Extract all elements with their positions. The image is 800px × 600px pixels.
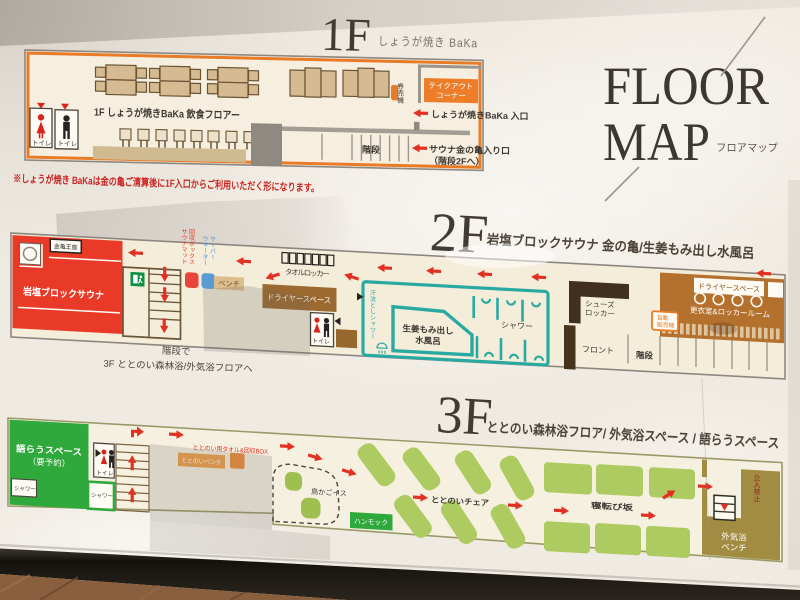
svg-text:しょうが焼きBaKa 入口: しょうが焼きBaKa 入口 (431, 108, 529, 121)
svg-text:フロアマップ: フロアマップ (716, 142, 778, 154)
svg-text:しょうが焼き BaKa: しょうが焼き BaKa (378, 33, 478, 50)
svg-text:階段: 階段 (362, 144, 381, 155)
svg-text:サーバー: サーバー (209, 236, 216, 260)
svg-text:汗流としシャワー: 汗流としシャワー (369, 289, 376, 340)
svg-text:トイレ: トイレ (32, 140, 51, 147)
svg-text:ベンチ: ベンチ (721, 542, 746, 553)
svg-text:MAP: MAP (603, 112, 710, 172)
svg-text:回収ボックス: 回収ボックス (188, 229, 195, 266)
svg-text:サウナマット: サウナマット (180, 228, 187, 265)
svg-text:トイレ: トイレ (96, 471, 114, 478)
svg-text:トイレ: トイレ (58, 141, 77, 148)
svg-text:トイレ: トイレ (312, 339, 330, 346)
svg-text:ロッカー: ロッカー (585, 308, 615, 319)
svg-text:コーナー: コーナー (436, 91, 466, 101)
svg-text:ウォーター: ウォーター (201, 235, 208, 265)
svg-text:シャワー: シャワー (14, 485, 36, 493)
svg-text:シャワー: シャワー (501, 321, 533, 332)
svg-text:券売機: 券売機 (397, 82, 404, 105)
svg-text:サウナ金の亀入り口: サウナ金の亀入り口 (429, 143, 510, 156)
svg-text:フロント: フロント (582, 345, 614, 356)
svg-text:3F: 3F (435, 386, 494, 447)
svg-text:FLOOR: FLOOR (603, 56, 769, 116)
svg-text:（階段2Fへ）: （階段2Fへ） (429, 155, 485, 167)
svg-text:水風呂: 水風呂 (414, 335, 440, 346)
svg-text:1F: 1F (321, 9, 372, 62)
svg-text:立入禁止: 立入禁止 (753, 473, 760, 502)
svg-text:シャワー: シャワー (91, 492, 113, 500)
svg-text:階段で: 階段で (162, 345, 191, 358)
svg-text:階段: 階段 (636, 350, 653, 361)
svg-text:テイクアウト: テイクアウト (429, 81, 474, 91)
